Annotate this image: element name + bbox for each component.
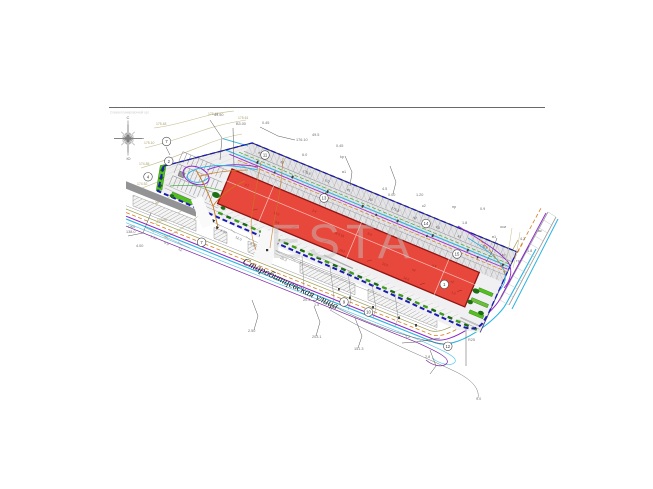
svg-text:49.5: 49.5 xyxy=(312,133,319,137)
svg-text:C: C xyxy=(127,115,130,120)
svg-text:151.3: 151.3 xyxy=(354,347,364,351)
svg-text:1.8: 1.8 xyxy=(462,221,467,225)
svg-text:0.45: 0.45 xyxy=(262,121,269,125)
svg-text:в1: в1 xyxy=(342,170,346,174)
svg-text:4.00: 4.00 xyxy=(136,244,143,248)
svg-text:Схема планировочной орг.: Схема планировочной орг. xyxy=(110,111,150,115)
svg-text:9.0: 9.0 xyxy=(476,397,481,401)
svg-text:4.5: 4.5 xyxy=(382,187,387,191)
svg-text:Ю: Ю xyxy=(127,156,131,161)
svg-text:2.50: 2.50 xyxy=(248,329,255,333)
svg-text:1.20: 1.20 xyxy=(416,193,423,197)
svg-text:0.45: 0.45 xyxy=(336,144,343,148)
svg-text:138.0: 138.0 xyxy=(126,230,136,234)
svg-text:B3.00: B3.00 xyxy=(236,122,246,126)
svg-text:вк: вк xyxy=(538,229,542,233)
svg-text:kp: kp xyxy=(340,155,344,159)
svg-text:1.5: 1.5 xyxy=(314,303,319,307)
svg-text:6.0: 6.0 xyxy=(302,153,307,157)
svg-text:0.9: 0.9 xyxy=(480,207,485,211)
svg-text:203.1: 203.1 xyxy=(312,335,322,339)
svg-text:тр: тр xyxy=(516,259,520,263)
svg-text:49.50: 49.50 xyxy=(214,113,224,117)
svg-text:15: 15 xyxy=(455,252,460,257)
svg-text:10: 10 xyxy=(366,310,371,315)
svg-text:176.10: 176.10 xyxy=(296,138,308,142)
svg-text:0.00: 0.00 xyxy=(388,193,395,197)
svg-text:2.8: 2.8 xyxy=(425,355,430,359)
svg-text:4.2: 4.2 xyxy=(520,237,525,241)
svg-text:13: 13 xyxy=(322,196,327,201)
svg-text:20.3: 20.3 xyxy=(303,298,310,302)
svg-text:1.8: 1.8 xyxy=(527,249,532,253)
svg-text:в1: в1 xyxy=(492,235,496,239)
svg-text:175.10: 175.10 xyxy=(144,141,154,145)
svg-text:14: 14 xyxy=(424,221,429,226)
svg-text:оси: оси xyxy=(500,225,506,229)
svg-text:12: 12 xyxy=(445,344,450,349)
svg-text:ESTA: ESTA xyxy=(270,216,416,269)
svg-text:174.52: 174.52 xyxy=(137,182,147,186)
svg-text:R25: R25 xyxy=(468,338,475,342)
svg-text:к2: к2 xyxy=(422,204,426,208)
svg-text:ПК0: ПК0 xyxy=(128,225,135,229)
svg-text:174.85: 174.85 xyxy=(139,162,149,166)
svg-text:175.48: 175.48 xyxy=(156,122,166,126)
svg-text:1.2: 1.2 xyxy=(405,335,410,339)
svg-text:175.61: 175.61 xyxy=(238,116,248,120)
svg-text:11: 11 xyxy=(263,153,268,158)
svg-text:пр: пр xyxy=(452,205,456,209)
